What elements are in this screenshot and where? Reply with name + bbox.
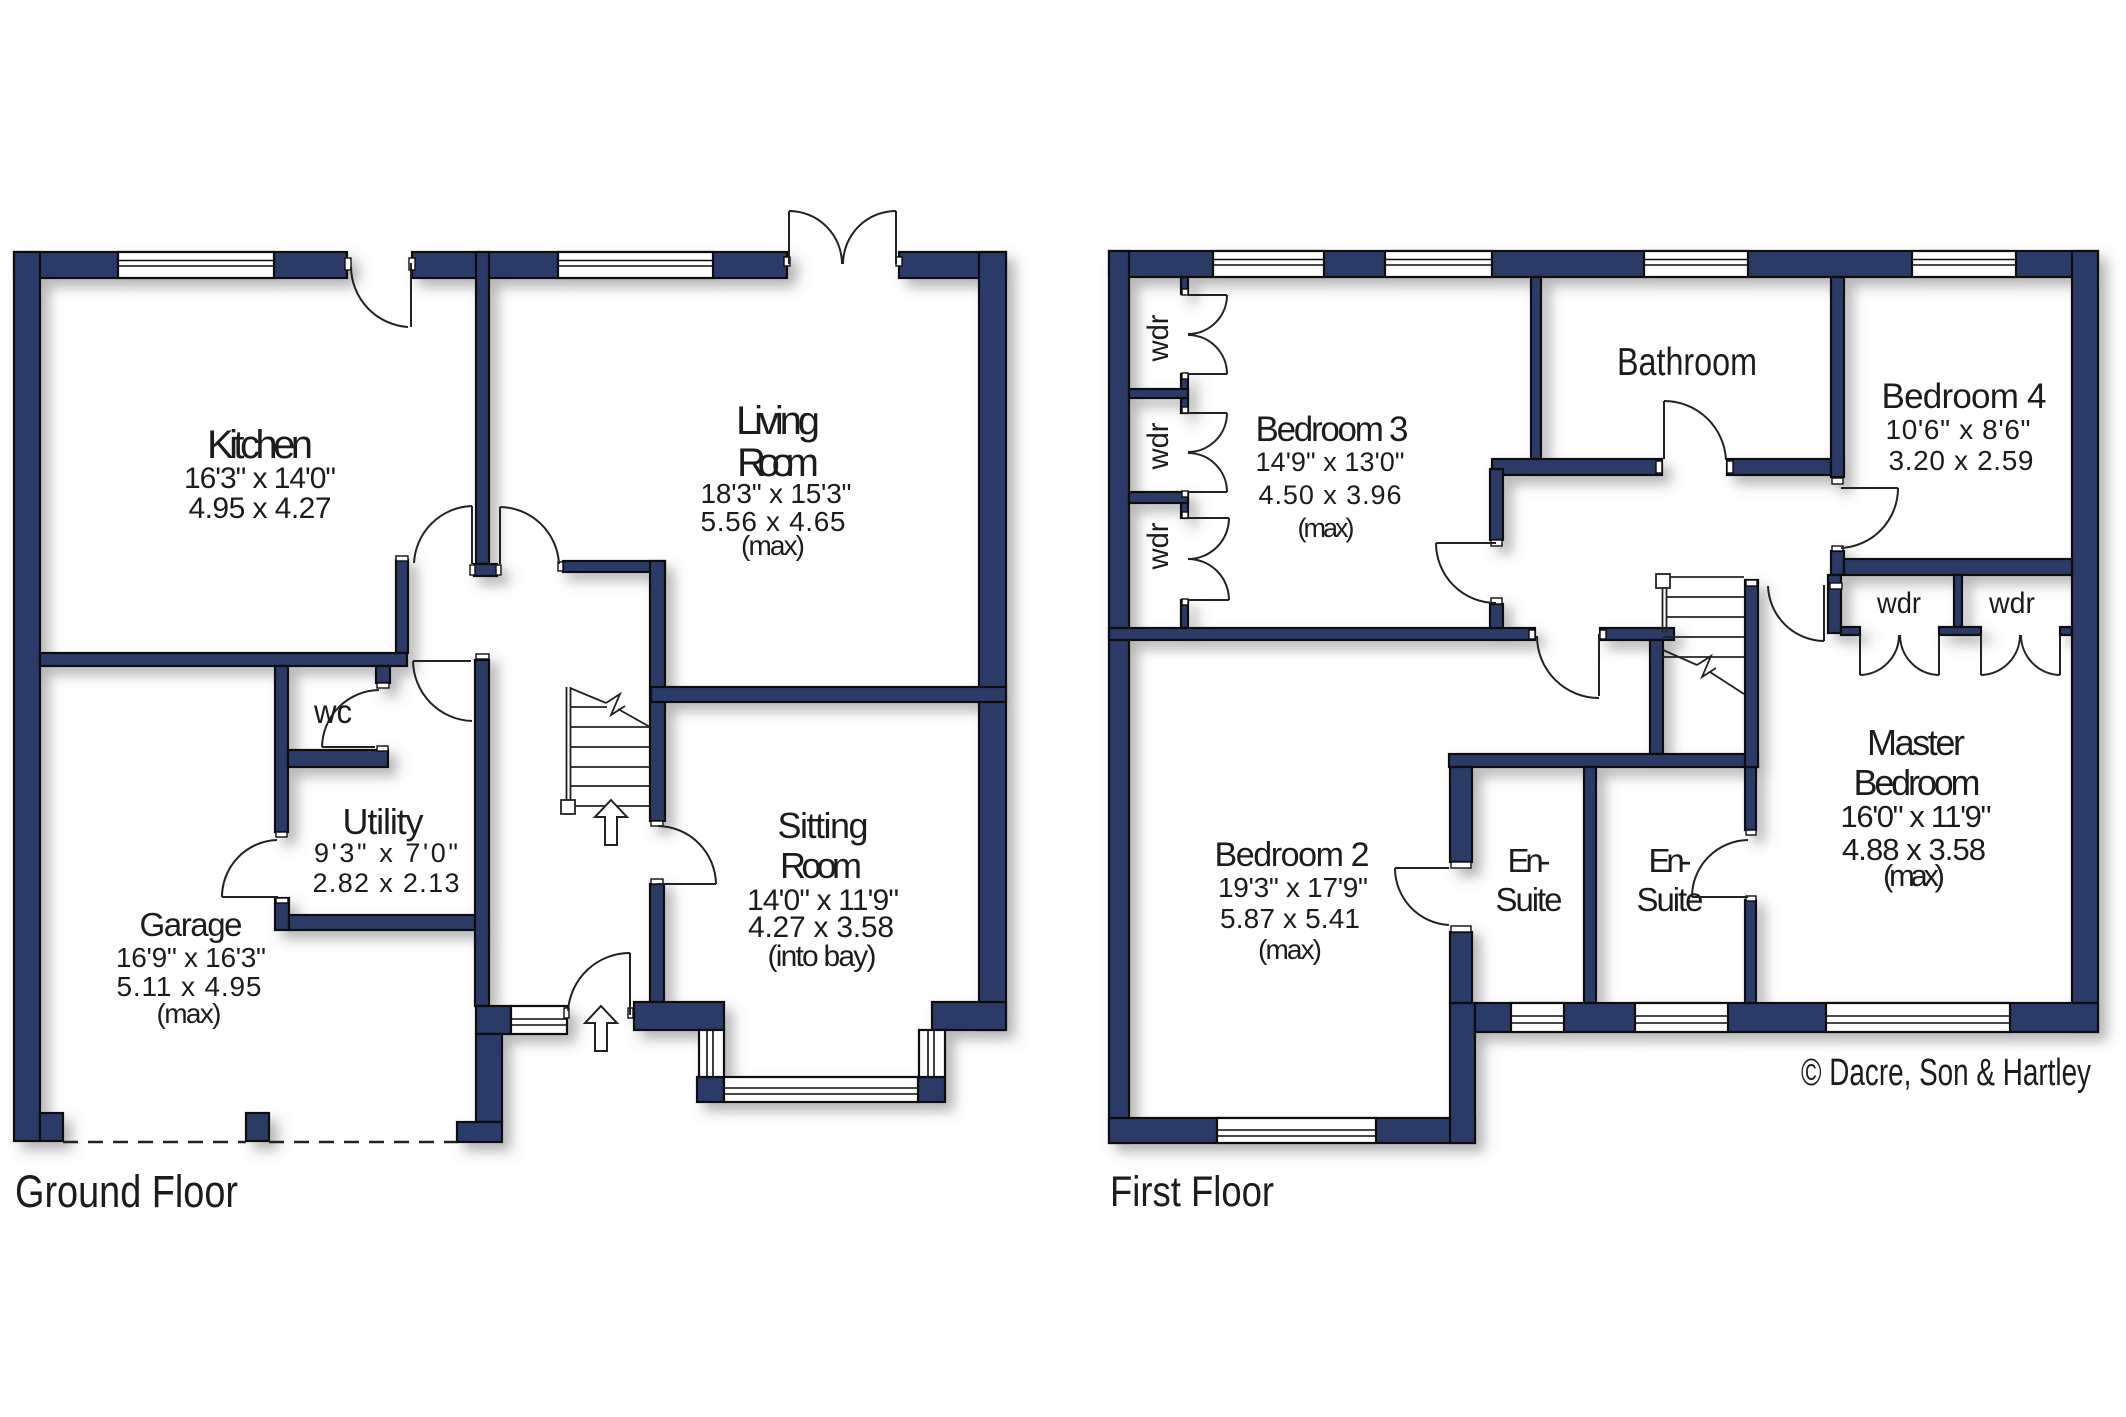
svg-text:(into bay): (into bay) xyxy=(768,940,877,973)
svg-text:Bedroom 4: Bedroom 4 xyxy=(1882,377,2047,416)
svg-text:wdr: wdr xyxy=(1142,422,1175,470)
svg-text:3.20 x 2.59: 3.20 x 2.59 xyxy=(1889,445,2034,476)
svg-text:(max): (max) xyxy=(157,998,222,1029)
svg-text:16'0" x 11'9": 16'0" x 11'9" xyxy=(1841,799,1992,834)
svg-text:16'9" x 16'3": 16'9" x 16'3" xyxy=(116,942,266,973)
svg-text:Bathroom: Bathroom xyxy=(1617,341,1757,384)
svg-text:(max): (max) xyxy=(1258,934,1322,965)
svg-text:10'6" x 8'6": 10'6" x 8'6" xyxy=(1886,414,2031,445)
svg-text:4.95 x 4.27: 4.95 x 4.27 xyxy=(189,492,332,525)
svg-text:Master: Master xyxy=(1867,722,1965,763)
svg-text:Utility: Utility xyxy=(343,801,424,842)
svg-text:wdr: wdr xyxy=(1988,587,2035,620)
svg-text:Sitting: Sitting xyxy=(778,805,869,846)
svg-text:9'3" x 7'0": 9'3" x 7'0" xyxy=(314,838,458,868)
svg-text:En-: En- xyxy=(1508,842,1551,879)
svg-text:First Floor: First Floor xyxy=(1110,1168,1274,1216)
svg-text:Kitchen: Kitchen xyxy=(207,423,313,467)
svg-text:Suite: Suite xyxy=(1496,881,1563,918)
svg-text:18'3" x 15'3": 18'3" x 15'3" xyxy=(701,478,852,509)
svg-text:14'9" x 13'0": 14'9" x 13'0" xyxy=(1256,447,1405,477)
svg-text:(max): (max) xyxy=(1883,858,1945,893)
svg-text:© Dacre, Son & Hartley: © Dacre, Son & Hartley xyxy=(1801,1052,2091,1094)
svg-text:Suite: Suite xyxy=(1637,881,1704,918)
svg-text:16'3" x 14'0": 16'3" x 14'0" xyxy=(184,462,336,495)
svg-text:(max): (max) xyxy=(1298,513,1355,543)
svg-text:Ground Floor: Ground Floor xyxy=(15,1166,238,1217)
svg-text:wdr: wdr xyxy=(1876,587,1921,620)
svg-text:wdr: wdr xyxy=(1142,314,1175,362)
svg-text:En-: En- xyxy=(1649,842,1692,879)
svg-text:4.50 x 3.96: 4.50 x 3.96 xyxy=(1259,480,1402,510)
svg-text:Living: Living xyxy=(736,399,820,443)
svg-text:5.87 x 5.41: 5.87 x 5.41 xyxy=(1220,903,1360,934)
svg-text:wdr: wdr xyxy=(1142,522,1175,570)
svg-text:Bedroom 3: Bedroom 3 xyxy=(1256,410,1409,449)
svg-text:2.82 x 2.13: 2.82 x 2.13 xyxy=(313,868,460,898)
svg-text:Bedroom: Bedroom xyxy=(1854,762,1981,803)
svg-text:Room: Room xyxy=(780,845,862,886)
svg-text:Garage: Garage xyxy=(140,906,243,943)
svg-text:Bedroom 2: Bedroom 2 xyxy=(1215,836,1370,874)
svg-text:wc: wc xyxy=(313,693,352,730)
svg-text:(max): (max) xyxy=(741,530,805,561)
svg-text:19'3" x 17'9": 19'3" x 17'9" xyxy=(1218,872,1368,903)
